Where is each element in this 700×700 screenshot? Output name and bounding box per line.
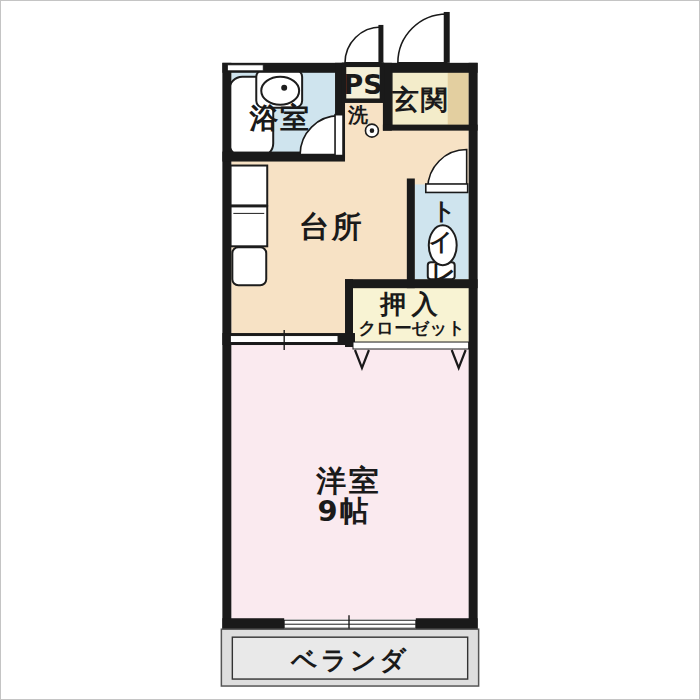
- wall-bottom-left: [222, 618, 284, 629]
- door-leaf-toilet: [426, 184, 468, 192]
- counter-unit: [230, 166, 267, 206]
- wall-closet-top: [345, 279, 478, 288]
- bathroom-window: [227, 65, 263, 71]
- wall-right: [469, 63, 478, 629]
- entrance-step-strip: [448, 71, 469, 127]
- stove-unit: [232, 247, 266, 285]
- door-leaf-entrance: [444, 12, 450, 63]
- label-laundry: 洗: [347, 103, 369, 127]
- kitchen-counter: [230, 166, 267, 286]
- label-toilet-char-1: ト: [431, 197, 455, 225]
- wall-bottom-right: [416, 618, 478, 629]
- label-ps: PS: [343, 69, 382, 100]
- label-toilet: ト イ レ: [428, 197, 455, 286]
- label-kitchen: 台所: [299, 209, 365, 244]
- door-leaf-ps: [378, 25, 383, 63]
- label-main-room-size: 9帖: [318, 494, 371, 528]
- washer-tap-dot: [370, 128, 375, 133]
- door-arc-entrance: [398, 14, 447, 63]
- basin-drain-dot: [281, 85, 287, 91]
- label-entrance: 玄関: [391, 84, 450, 115]
- label-main-room: 洋室: [315, 463, 382, 498]
- label-closet-top: 押入: [379, 289, 444, 319]
- label-bathroom: 浴室: [248, 101, 311, 135]
- closet-band: [353, 342, 469, 349]
- wall-toilet-left: [407, 178, 415, 288]
- door-leaf-bathroom: [335, 115, 343, 156]
- label-veranda: ベランダ: [290, 645, 409, 675]
- sink-unit: [230, 206, 267, 246]
- wall-entrance-bottom: [383, 125, 478, 131]
- label-closet-bottom: クローゼット: [358, 318, 465, 338]
- label-toilet-char-3: レ: [431, 258, 455, 286]
- floorplan-image: 浴室 PS 玄関 洗 台所 ト イ レ 押入 クローゼット 洋室 9帖 ベランダ: [0, 0, 700, 700]
- wall-entrance-left: [383, 63, 392, 131]
- label-toilet-char-2: イ: [428, 228, 452, 256]
- door-arc-ps: [345, 27, 381, 63]
- wall-left: [222, 63, 231, 629]
